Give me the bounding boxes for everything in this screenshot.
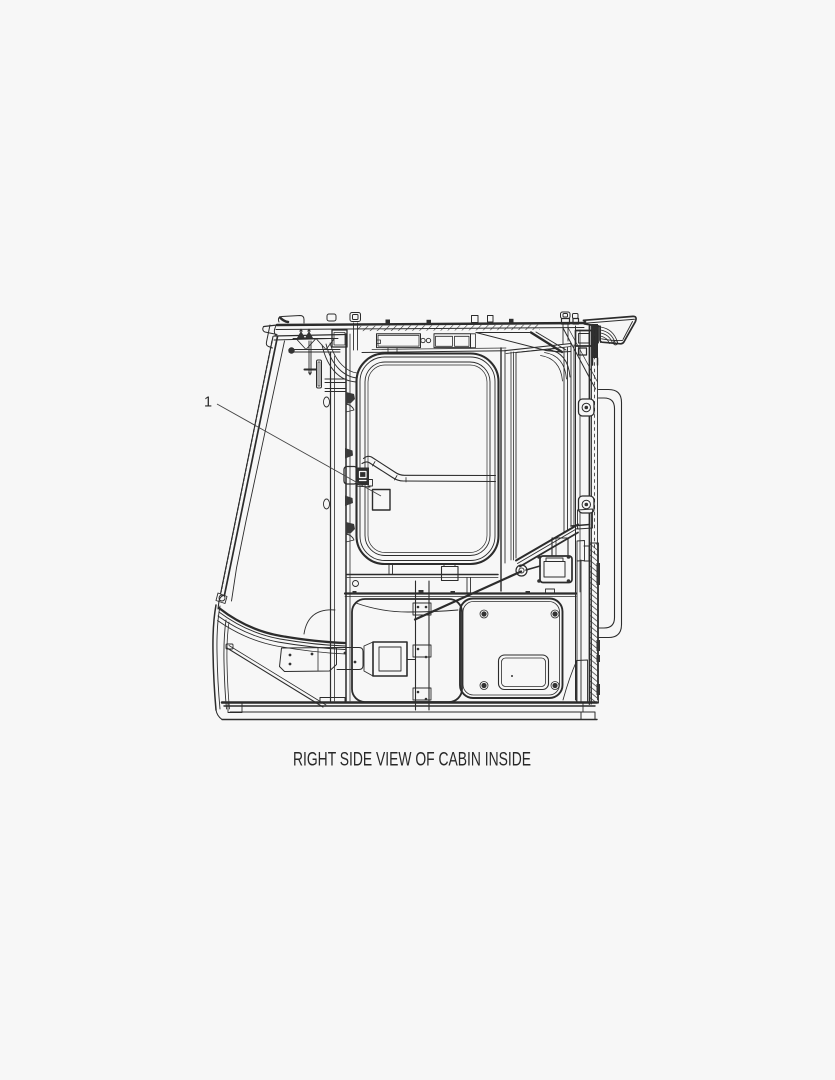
- svg-text:1: 1: [204, 395, 212, 411]
- svg-text:RIGHT SIDE VIEW OF CABIN INSID: RIGHT SIDE VIEW OF CABIN INSIDE: [293, 750, 531, 771]
